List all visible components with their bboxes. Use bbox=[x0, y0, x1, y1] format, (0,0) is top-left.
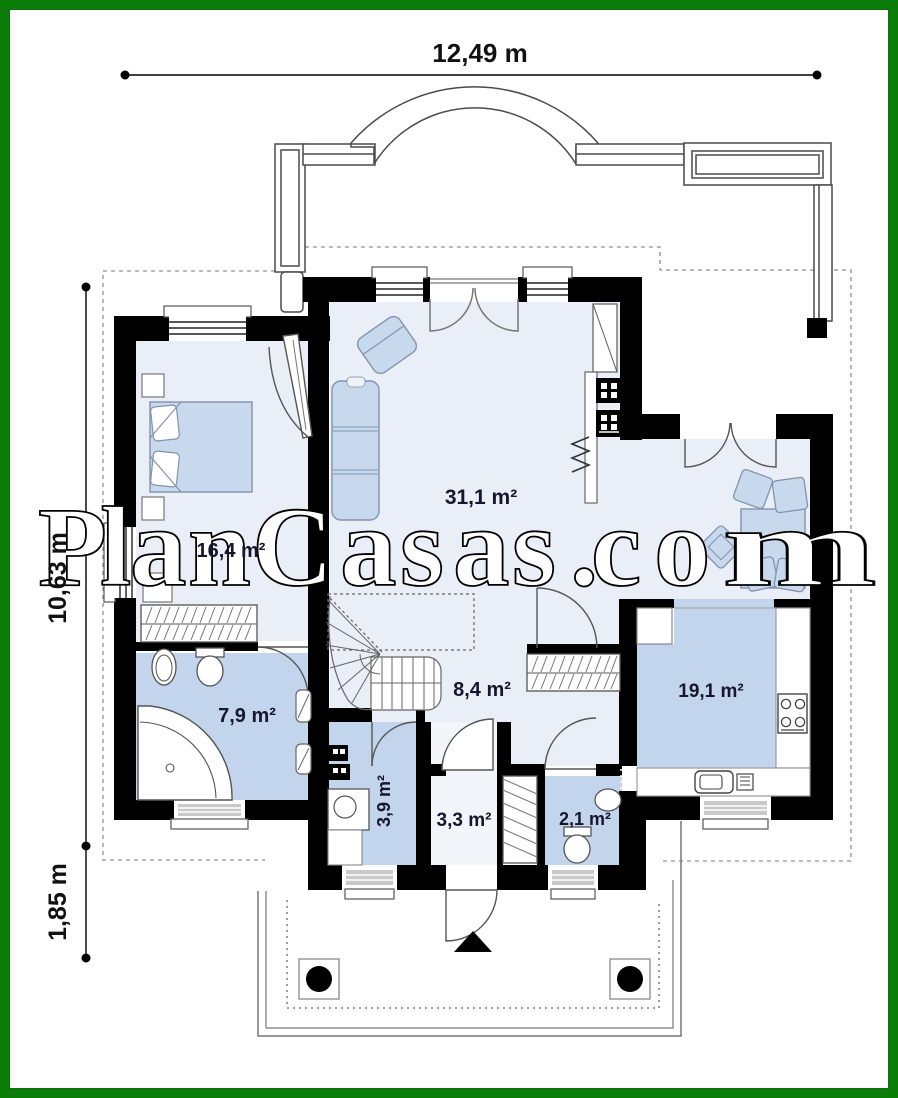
svg-text:7,9 m²: 7,9 m² bbox=[218, 705, 276, 727]
svg-text:1,85 m: 1,85 m bbox=[44, 863, 72, 941]
svg-text:m: m bbox=[722, 485, 877, 610]
svg-text:31,1 m²: 31,1 m² bbox=[445, 486, 517, 509]
svg-text:8,4 m²: 8,4 m² bbox=[453, 679, 511, 701]
svg-text:19,1 m²: 19,1 m² bbox=[678, 681, 743, 702]
svg-text:.co: .co bbox=[570, 485, 711, 610]
svg-text:3,3 m²: 3,3 m² bbox=[437, 810, 492, 831]
svg-text:10,63 m: 10,63 m bbox=[44, 532, 72, 624]
svg-text:16,4 m²: 16,4 m² bbox=[197, 540, 266, 562]
svg-text:12,49 m: 12,49 m bbox=[432, 38, 527, 68]
svg-text:3,9 m²: 3,9 m² bbox=[374, 775, 394, 827]
svg-text:2,1 m²: 2,1 m² bbox=[559, 809, 611, 829]
